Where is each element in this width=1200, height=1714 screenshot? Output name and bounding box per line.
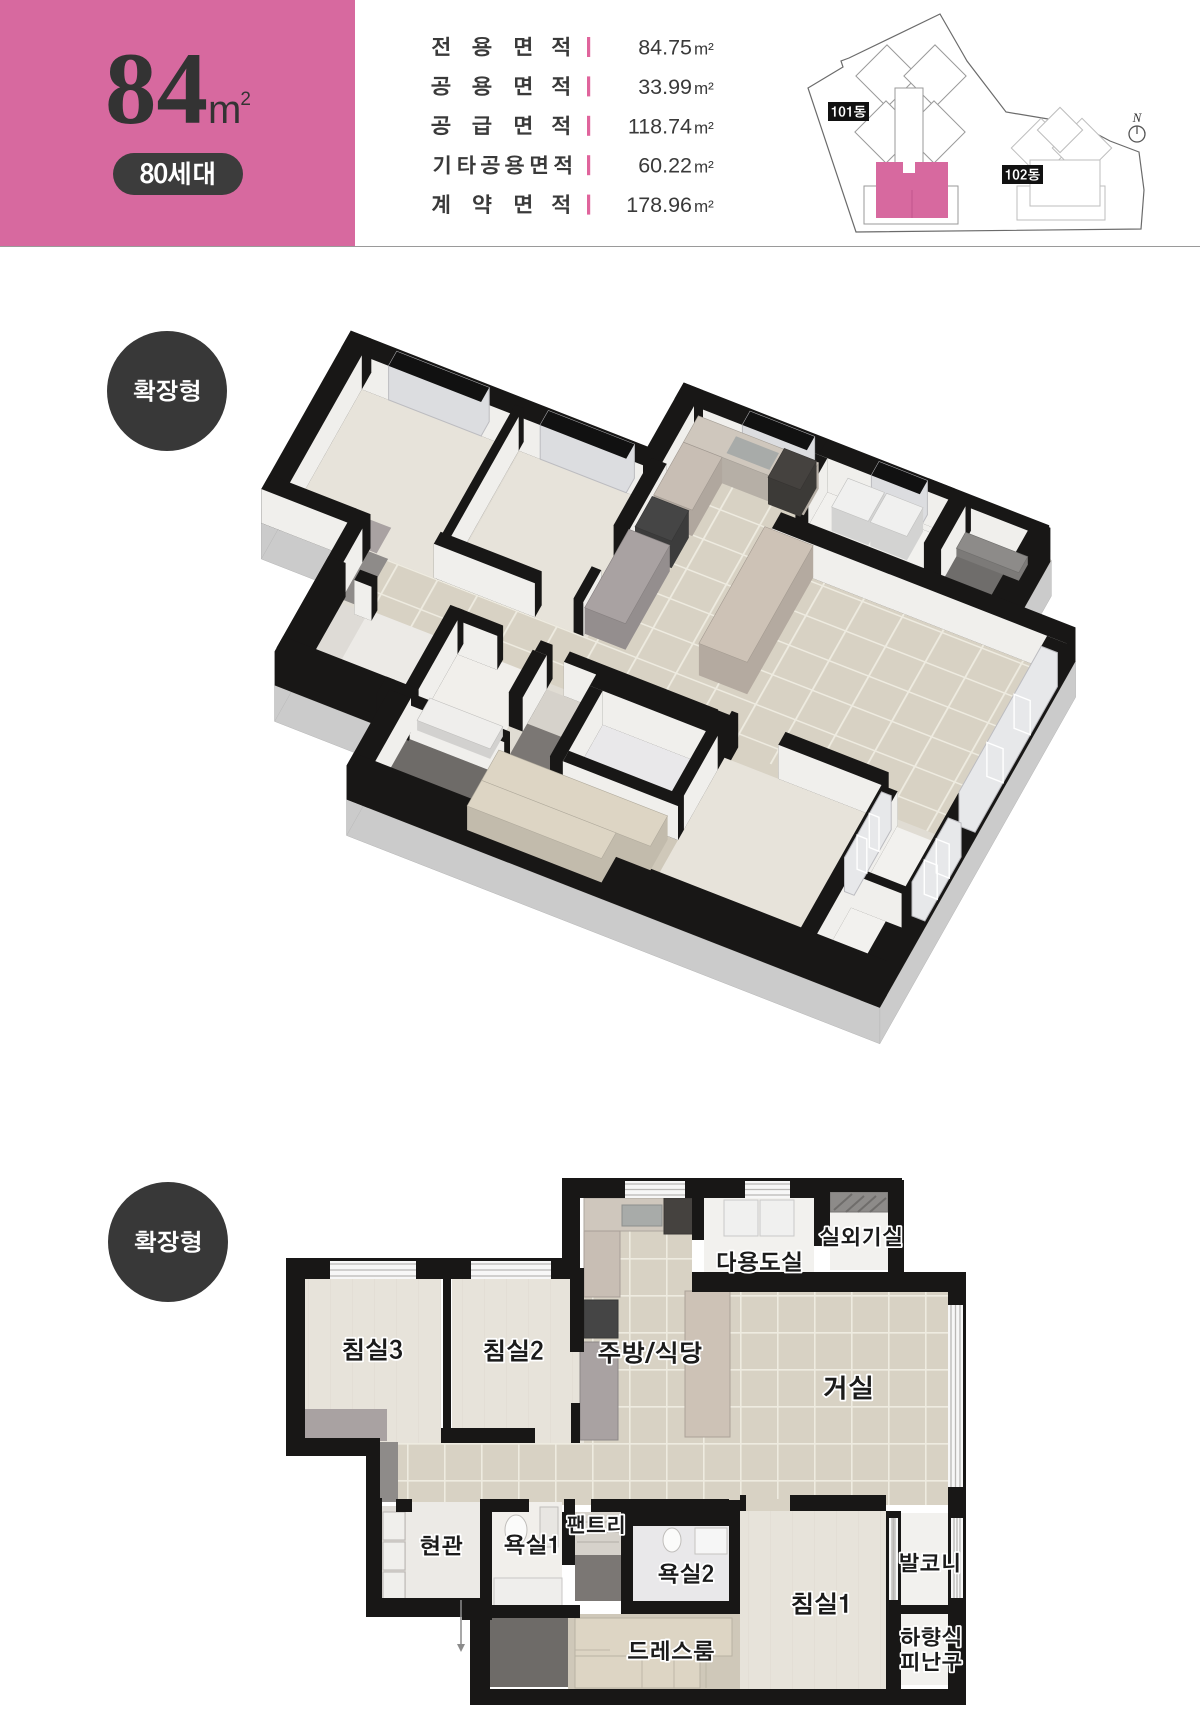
svg-text:118.74: 118.74 [628,114,692,138]
svg-text:N: N [1132,110,1143,125]
svg-text:33.99: 33.99 [638,75,692,99]
svg-text:m²: m² [694,197,714,216]
svg-text:m²: m² [694,79,714,98]
svg-text:m²: m² [694,118,714,137]
svg-text:m²: m² [694,158,714,177]
svg-text:178.96: 178.96 [626,193,692,217]
svg-text:60.22: 60.22 [638,154,692,178]
svg-text:m²: m² [694,40,714,59]
svg-text:84.75: 84.75 [638,36,692,60]
